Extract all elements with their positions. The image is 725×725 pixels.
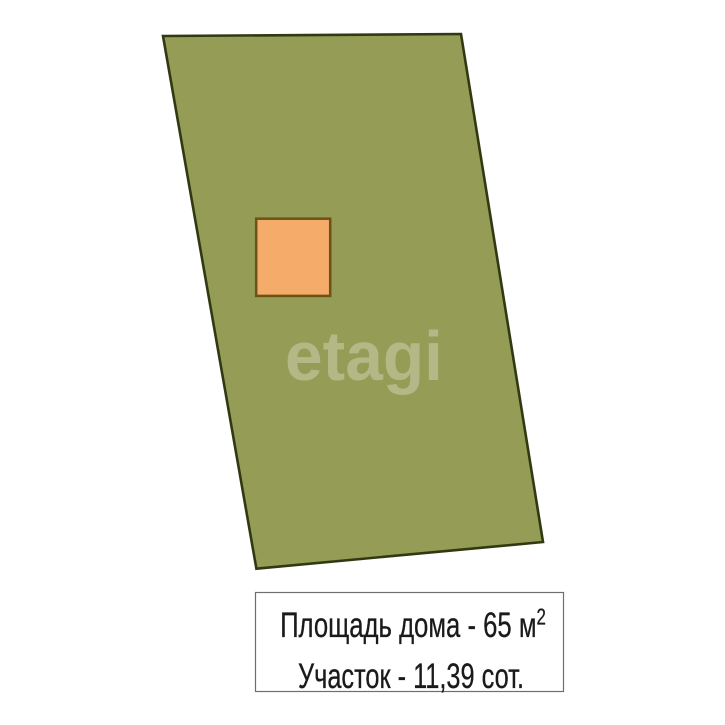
svg-text:etagi: etagi — [285, 317, 443, 395]
svg-text:Площадь дома - 65 м2: Площадь дома - 65 м2 — [280, 605, 546, 645]
svg-text:Участок - 11,39 сот.: Участок - 11,39 сот. — [298, 657, 524, 696]
